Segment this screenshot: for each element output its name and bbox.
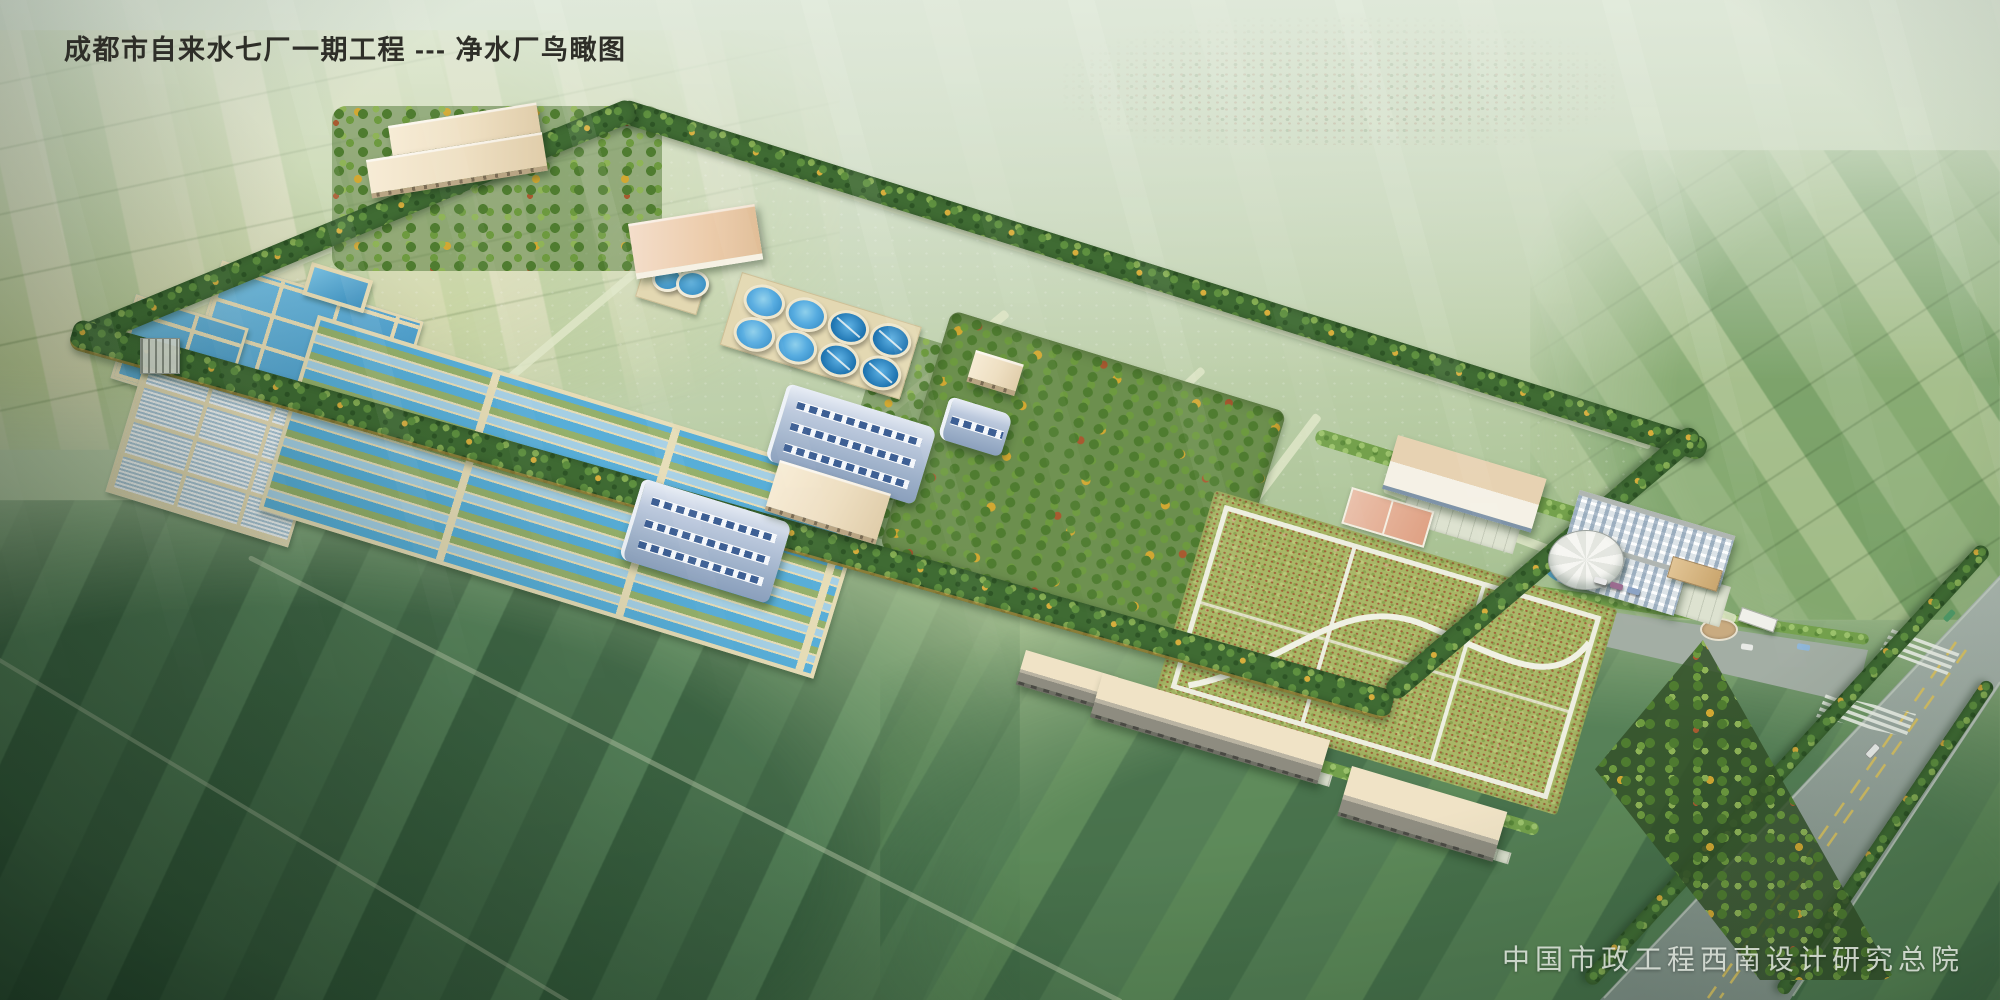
design-institute-credit: 中国市政工程西南设计研究总院 <box>1502 938 1964 978</box>
round-tank-2 <box>676 270 709 298</box>
skylight-row <box>950 415 1004 439</box>
skylight-row <box>643 518 771 565</box>
car-green <box>1943 609 1956 623</box>
west-pergola <box>140 338 180 374</box>
skylight-row <box>789 422 917 469</box>
page-title: 成都市自来水七厂一期工程 --- 净水厂鸟瞰图 <box>64 28 626 67</box>
aerial-rendering-canvas: 成都市自来水七厂一期工程 --- 净水厂鸟瞰图 中国市政工程西南设计研究总院 <box>0 0 2000 1000</box>
